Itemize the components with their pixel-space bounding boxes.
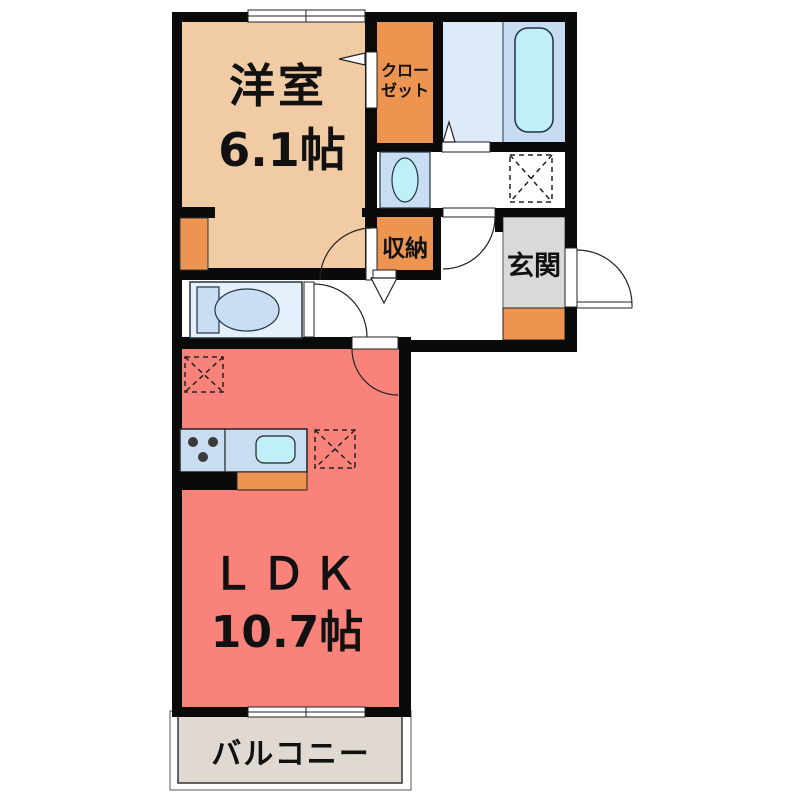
closet-label-line1: クロー — [381, 61, 429, 80]
bathroom-floor — [443, 22, 503, 142]
kitchen-sink-icon — [256, 436, 295, 463]
western-room-label: 洋室 — [229, 59, 327, 113]
storage-label: 収納 — [382, 235, 428, 262]
western-room-size-label: 6.1帖 — [218, 123, 346, 177]
pipe-space — [180, 218, 208, 270]
washbasin-bowl-icon — [392, 158, 418, 202]
burner-dot — [198, 452, 208, 462]
toilet-door-leaf — [304, 282, 314, 337]
bath-door-opening — [442, 142, 490, 152]
floorplan-drawing: 洋室 6.1帖 クロー ゼット 収納 玄関 ＬＤＫ 10.7帖 バルコニー — [0, 0, 800, 800]
wall-upper-block-bottom — [399, 340, 577, 352]
burner-dot — [188, 437, 198, 447]
wall-ldk-right — [399, 340, 411, 717]
closet-door-opening — [366, 52, 377, 108]
bathtub-icon — [515, 28, 553, 132]
wall-storage-right — [433, 208, 441, 280]
entrance-label: 玄関 — [507, 250, 561, 282]
ldk-size-label: 10.7帖 — [211, 607, 364, 658]
ldk-label: ＬＤＫ — [211, 549, 364, 600]
front-door-opening — [565, 248, 577, 307]
floorplan: 洋室 6.1帖 クロー ゼット 収納 玄関 ＬＤＫ 10.7帖 バルコニー — [0, 0, 800, 800]
shoe-cabinet — [503, 308, 565, 340]
wall-closet-bottom — [365, 143, 443, 152]
wall-closet-right — [433, 12, 443, 152]
kitchen-base-orange — [237, 472, 307, 490]
balcony-label: バルコニー — [211, 737, 370, 772]
burner-dot — [208, 437, 218, 447]
washroom-door-opening — [443, 208, 495, 217]
kitchen-base-dark — [172, 472, 237, 490]
closet-label-line2: ゼット — [381, 81, 429, 100]
toilet-bowl-icon — [215, 289, 279, 331]
ldk-door-opening — [352, 337, 398, 349]
wall-pillar-stub — [172, 207, 215, 218]
front-door-leaf — [577, 302, 632, 308]
wall-entrance-stub — [495, 208, 503, 232]
wall-left — [172, 12, 182, 717]
